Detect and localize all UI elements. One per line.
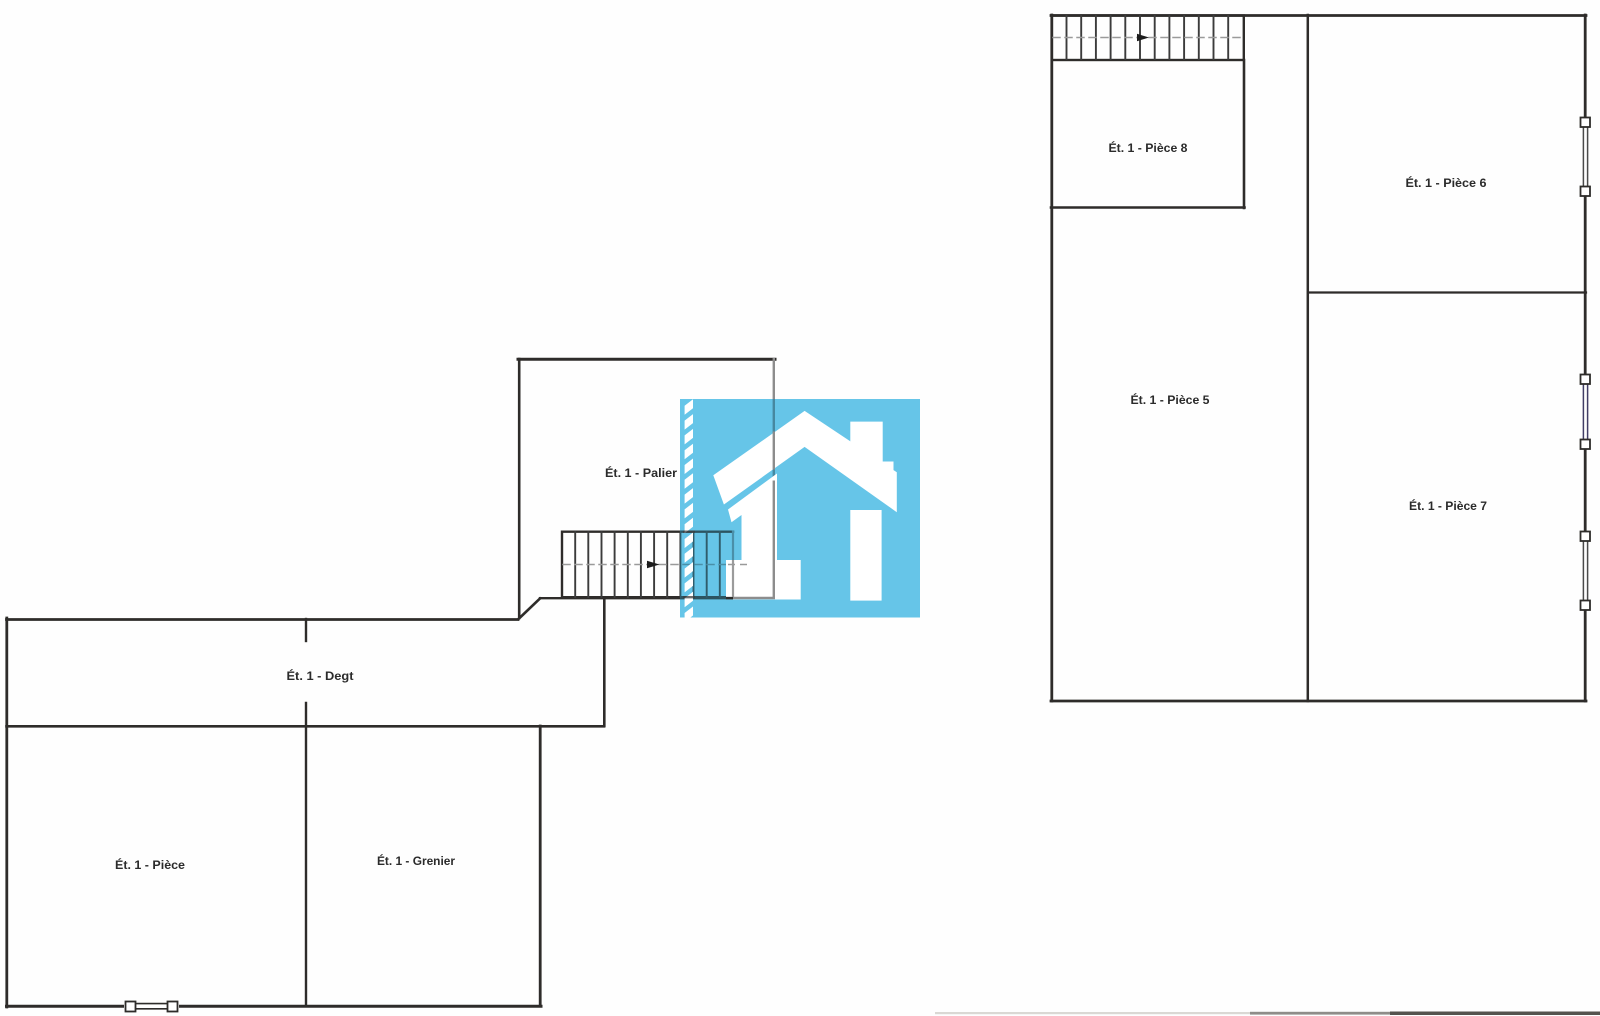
svg-text:Ét. 1 - Pièce 5: Ét. 1 - Pièce 5 [1131,392,1210,407]
svg-text:Ét. 1 - Grenier: Ét. 1 - Grenier [377,853,455,868]
svg-text:Ét. 1 - Pièce 8: Ét. 1 - Pièce 8 [1109,140,1188,155]
svg-text:Ét. 1 - Palier: Ét. 1 - Palier [605,465,677,480]
svg-text:Ét. 1 - Pièce 7: Ét. 1 - Pièce 7 [1409,498,1487,513]
svg-text:Ét. 1 - Pièce 6: Ét. 1 - Pièce 6 [1406,175,1487,190]
svg-text:Ét. 1 - Degt: Ét. 1 - Degt [287,668,354,683]
svg-text:Ét. 1 - Pièce: Ét. 1 - Pièce [115,857,185,872]
